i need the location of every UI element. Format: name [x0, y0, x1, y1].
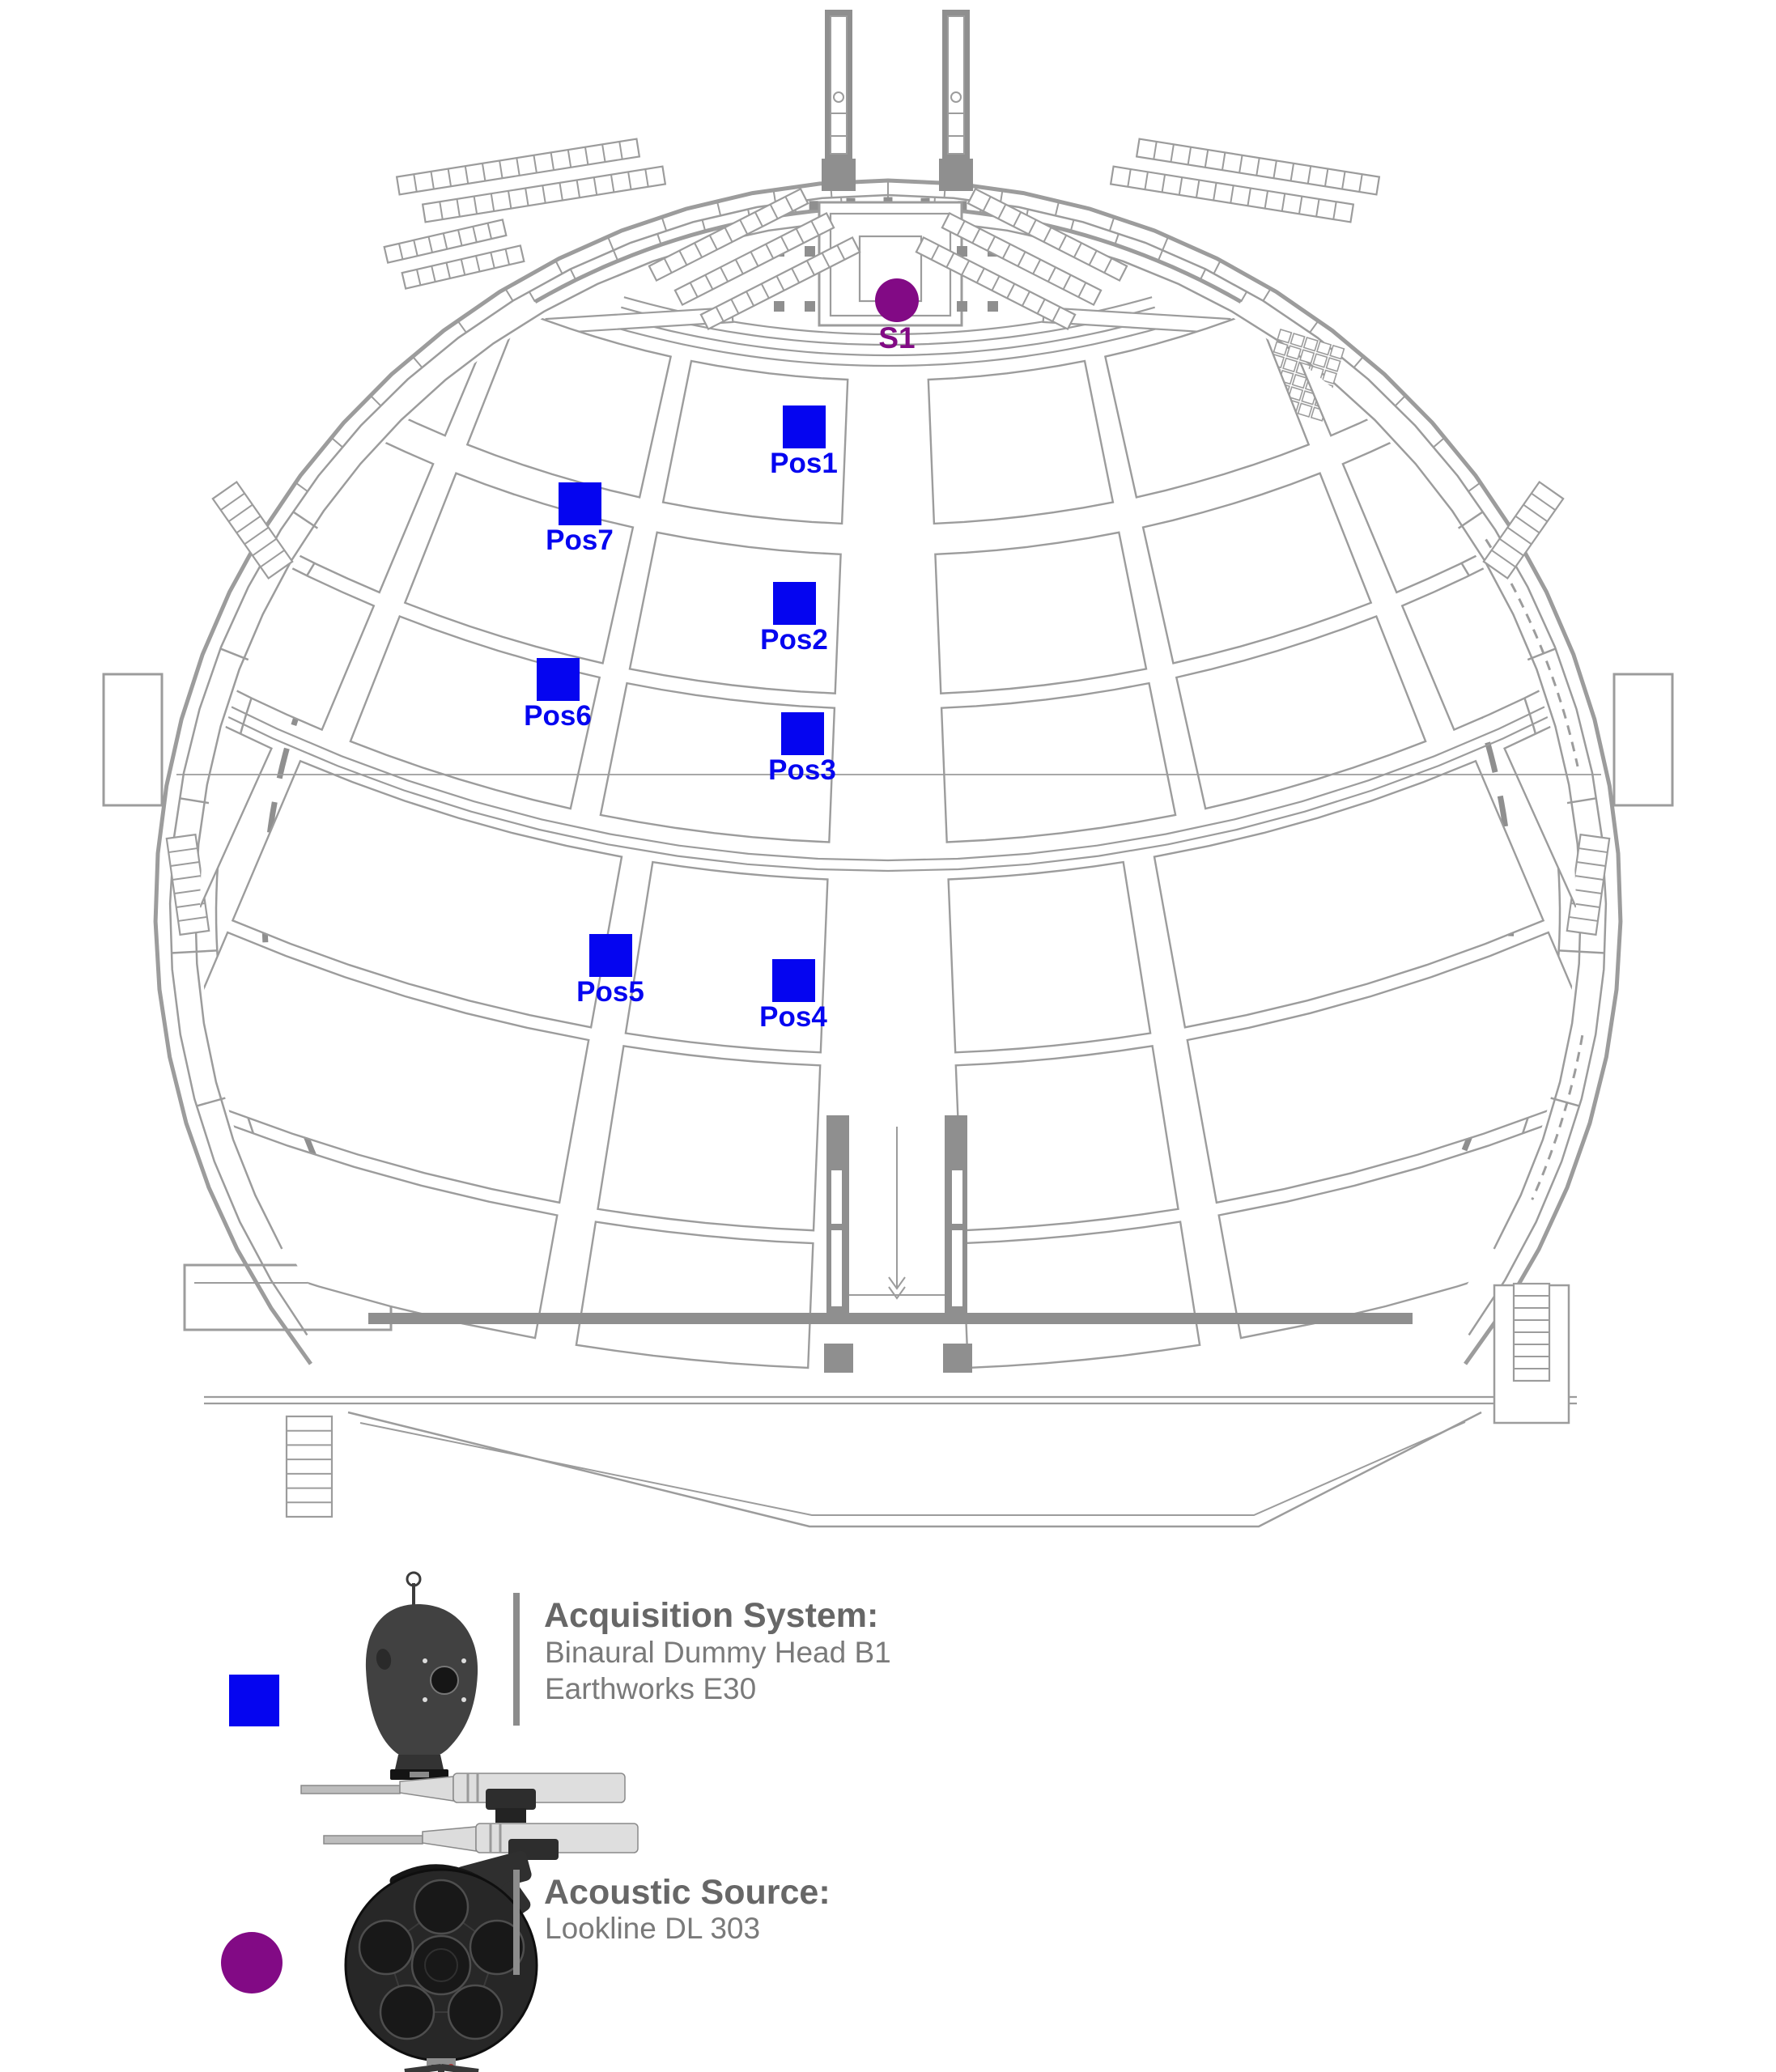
legend-divider-bar: [513, 1593, 520, 1726]
position-label-pos7: Pos7: [515, 524, 644, 557]
position-label-pos1: Pos1: [739, 448, 869, 480]
entrance-area: [204, 1115, 1577, 1526]
position-label-pos2: Pos2: [729, 624, 859, 656]
position-label-pos3: Pos3: [737, 754, 867, 787]
position-marker-pos2: [773, 582, 816, 625]
source-title: Acoustic Source:: [544, 1873, 831, 1913]
stage-towers: [822, 10, 973, 191]
acquisition-line-1: Binaural Dummy Head B1: [545, 1636, 891, 1670]
source-label: S1: [848, 324, 945, 353]
acquisition-title: Acquisition System:: [544, 1596, 878, 1636]
legend-divider-bar: [513, 1870, 520, 1975]
position-label-pos4: Pos4: [729, 1001, 858, 1034]
acquisition-line-2: Earthworks E30: [545, 1672, 756, 1706]
position-label-pos5: Pos5: [546, 976, 675, 1008]
position-label-pos6: Pos6: [493, 700, 622, 732]
measurement-setup-figure: Pos1Pos2Pos3Pos4Pos5Pos6Pos7S1 Acquisiti…: [0, 0, 1776, 2072]
position-marker-pos4: [772, 959, 815, 1002]
dodecahedron-speaker-image: [346, 1870, 537, 2072]
position-marker-pos7: [559, 482, 601, 525]
source-legend-swatch: [221, 1932, 283, 1993]
position-marker-pos1: [783, 405, 826, 448]
source-line-1: Lookline DL 303: [545, 1912, 760, 1946]
acquisition-legend-swatch: [229, 1675, 279, 1726]
source-marker-s1: [875, 278, 919, 322]
position-marker-pos6: [537, 658, 580, 701]
dummy-head-image: [366, 1573, 478, 1780]
position-marker-pos3: [781, 712, 824, 755]
position-marker-pos5: [589, 934, 632, 977]
